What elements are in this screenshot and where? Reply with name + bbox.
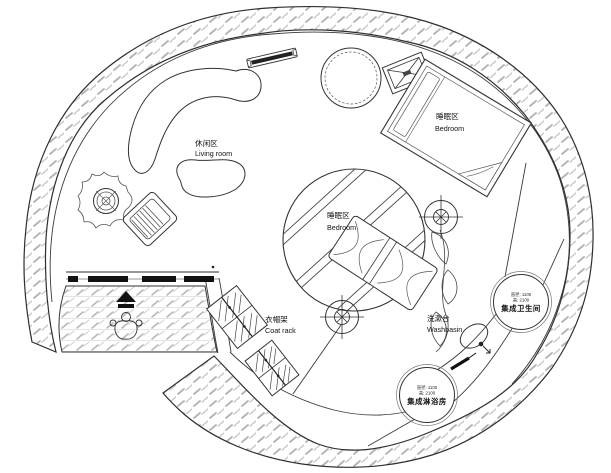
shower-pod: 直径: 1100 高: 2100 集成淋浴房: [397, 365, 458, 426]
washbasin-icon: [456, 319, 493, 353]
living-room-label-zh: 休闲区: [195, 138, 218, 148]
door-swing-mark: [451, 353, 476, 369]
bedroom-upper-label-en: Bedroom: [435, 124, 464, 133]
coat-rack-label-zh: 衣帽架: [265, 314, 288, 324]
round-table: [321, 48, 381, 108]
washbasin-label-en: Washbasin: [427, 325, 462, 334]
armchair: [122, 191, 179, 247]
entrance-deck: [59, 286, 217, 352]
coat-rack-lower: [245, 340, 299, 396]
tv-cabinet: [247, 48, 298, 68]
coat-rack-label-en: Coat rack: [265, 326, 296, 335]
entrance-door: [66, 272, 219, 282]
shower-pod-label: 集成淋浴房: [406, 397, 446, 406]
reference-dot: [212, 266, 215, 269]
bathroom-pod: 直径: 1100 高: 2100 集成卫生间: [491, 272, 552, 333]
bathroom-pod-diameter: 直径: 1100: [511, 291, 532, 297]
floor-plan: 直径: 1100 高: 2100 集成卫生间 直径: 1100 高: 2100 …: [0, 0, 611, 473]
bedroom-center-label-en: Bedroom: [327, 223, 356, 232]
washbasin-label-zh: 洗漱台: [427, 313, 450, 323]
bedroom-center-label-zh: 睡眠区: [327, 211, 350, 220]
shower-pod-height: 高: 2100: [419, 390, 436, 397]
shower-pod-diameter: 直径: 1100: [417, 384, 438, 390]
floor-plan-canvas: 直径: 1100 高: 2100 集成卫生间 直径: 1100 高: 2100 …: [0, 0, 611, 473]
coffee-table: [177, 160, 245, 197]
bathroom-pod-height: 高: 2100: [513, 297, 530, 304]
bathroom-pod-label: 集成卫生间: [500, 304, 540, 313]
bedroom-upper-label-zh: 睡眠区: [436, 112, 459, 121]
living-room-label-en: Living room: [195, 149, 232, 158]
